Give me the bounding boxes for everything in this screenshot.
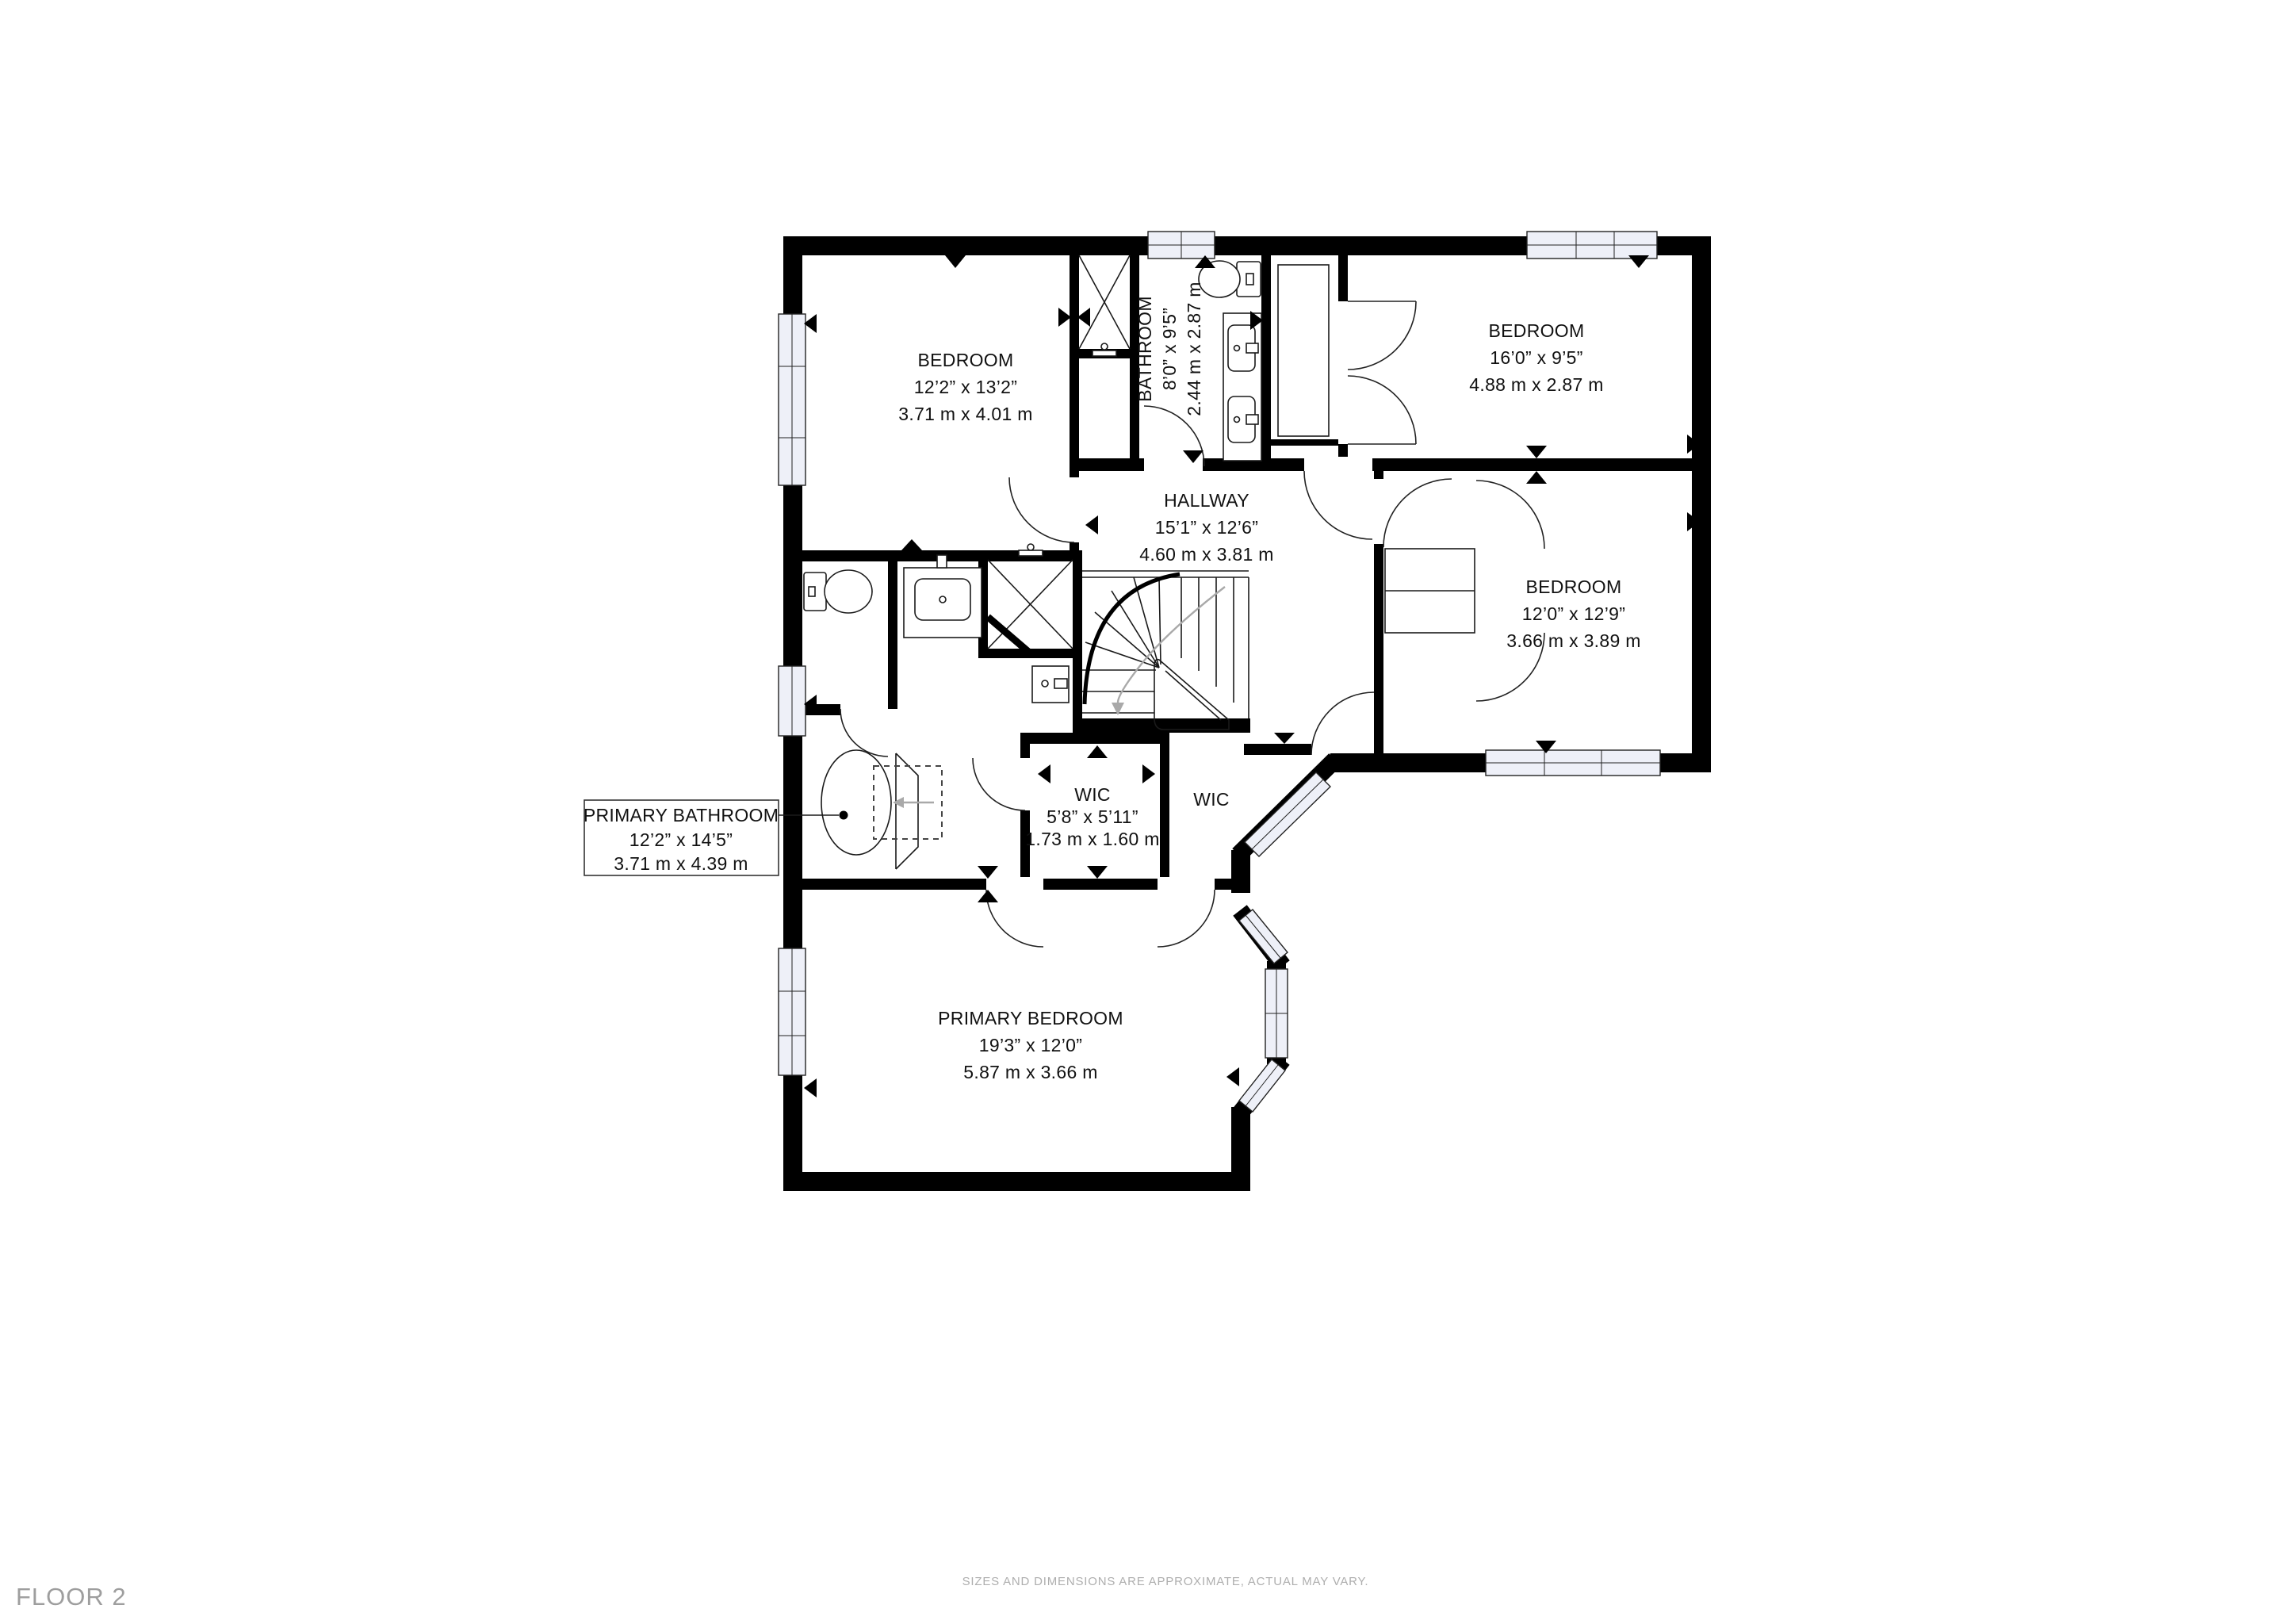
- bathroom-dim-ft: 8’0” x 9’5”: [1159, 308, 1180, 390]
- primary-bathroom-callout-dot: [840, 811, 848, 820]
- window-left-bedroom1: [779, 314, 806, 485]
- bedroom2-dim-ft: 16’0” x 9’5”: [1490, 347, 1582, 368]
- closet-bedroom2: [1278, 265, 1329, 436]
- window-left-primary-bedroom: [779, 948, 806, 1075]
- window-bay-center: [1265, 969, 1288, 1058]
- room-label-wic2: WIC: [1193, 789, 1230, 810]
- shower-top-bathroom: [1079, 255, 1130, 356]
- hallway-dim-ft: 15’1” x 12’6”: [1155, 517, 1258, 538]
- room-label-bathroom: BATHROOM 8’0” x 9’5” 2.44 m x 2.87 m: [1135, 282, 1204, 416]
- room-label-primary-bathroom: PRIMARY BATHROOM 12’2” x 14’5” 3.71 m x …: [584, 800, 848, 875]
- window-bay-upper: [1239, 910, 1288, 963]
- hallway-name: HALLWAY: [1164, 490, 1249, 511]
- floorplan-page: BEDROOM 12’2” x 13’2” 3.71 m x 4.01 m BA…: [0, 0, 2296, 1624]
- door-closet-bedroom2-b: [1348, 376, 1416, 444]
- room-label-bedroom1: BEDROOM 12’2” x 13’2” 3.71 m x 4.01 m: [898, 350, 1032, 424]
- staircase: [1082, 571, 1249, 730]
- room-label-wic: WIC 5’8” x 5’11” 1.73 m x 1.60 m: [1025, 784, 1159, 849]
- window-diagonal-wic: [1245, 772, 1330, 856]
- primary-bedroom-name: PRIMARY BEDROOM: [938, 1008, 1123, 1028]
- bedroom1-name: BEDROOM: [918, 350, 1014, 370]
- door-bedroom3: [1383, 479, 1452, 547]
- door-bedroom1: [1009, 477, 1074, 542]
- door-wic: [973, 758, 1025, 810]
- window-bay-lower: [1239, 1059, 1285, 1112]
- bedroom2-name: BEDROOM: [1489, 320, 1585, 341]
- label-layer: BEDROOM 12’2” x 13’2” 3.71 m x 4.01 m BA…: [584, 282, 1641, 1082]
- door-primary-bedroom-a: [986, 890, 1043, 947]
- door-closet-bedroom2-a: [1348, 301, 1416, 370]
- window-bottom-bedroom3: [1486, 750, 1660, 776]
- vanity-primary-bathroom: [904, 555, 982, 638]
- bedroom3-name: BEDROOM: [1526, 576, 1622, 597]
- wic-dim-m: 1.73 m x 1.60 m: [1025, 829, 1159, 849]
- room-label-bedroom2: BEDROOM 16’0” x 9’5” 4.88 m x 2.87 m: [1469, 320, 1603, 395]
- toilet-primary-bathroom: [804, 570, 872, 613]
- primary-bedroom-dim-m: 5.87 m x 3.66 m: [963, 1062, 1097, 1082]
- door-primary-bedroom-b: [1158, 890, 1215, 947]
- bathroom-dim-m: 2.44 m x 2.87 m: [1184, 282, 1204, 416]
- bedroom1-dim-ft: 12’2” x 13’2”: [914, 377, 1017, 397]
- bedroom2-dim-m: 4.88 m x 2.87 m: [1469, 374, 1603, 395]
- room-label-bedroom3: BEDROOM 12’0” x 12’9” 3.66 m x 3.89 m: [1506, 576, 1640, 651]
- wic-dim-ft: 5’8” x 5’11”: [1047, 806, 1138, 827]
- primary-bedroom-dim-ft: 19’3” x 12’0”: [979, 1035, 1082, 1055]
- primary-bathroom-dim-m: 3.71 m x 4.39 m: [614, 853, 748, 874]
- double-vanity-top-bathroom: [1223, 313, 1261, 461]
- hallway-dim-m: 4.60 m x 3.81 m: [1139, 544, 1273, 565]
- sink-hall-nook: [1032, 666, 1069, 703]
- wic-name: WIC: [1074, 784, 1111, 805]
- primary-bathroom-name: PRIMARY BATHROOM: [584, 805, 779, 825]
- disclaimer-text: SIZES AND DIMENSIONS ARE APPROXIMATE, AC…: [962, 1575, 1369, 1588]
- bedroom3-dim-ft: 12’0” x 12’9”: [1522, 603, 1625, 624]
- door-toilet-room: [840, 709, 888, 756]
- bedroom1-dim-m: 3.71 m x 4.01 m: [898, 404, 1032, 424]
- room-label-hallway: HALLWAY 15’1” x 12’6” 4.60 m x 3.81 m: [1139, 490, 1273, 565]
- bedroom3-dim-m: 3.66 m x 3.89 m: [1506, 630, 1640, 651]
- closet-bedroom3: [1385, 549, 1475, 633]
- door-wic-corridor: [1311, 692, 1374, 755]
- bathroom-name: BATHROOM: [1135, 296, 1155, 402]
- door-closet-bedroom3-a: [1476, 481, 1544, 549]
- window-top-bedroom2: [1527, 232, 1657, 259]
- floor-plan-canvas: BEDROOM 12’2” x 13’2” 3.71 m x 4.01 m BA…: [0, 0, 2296, 1624]
- room-label-primary-bedroom: PRIMARY BEDROOM 19’3” x 12’0” 5.87 m x 3…: [938, 1008, 1123, 1082]
- primary-bathroom-dim-ft: 12’2” x 14’5”: [629, 829, 733, 850]
- tub-deck: [896, 753, 918, 869]
- bathtub: [821, 750, 891, 855]
- floor-title: FLOOR 2: [16, 1583, 127, 1611]
- door-bedroom2: [1304, 471, 1372, 539]
- window-top-bathroom: [1148, 232, 1215, 259]
- window-left-toilet-room: [779, 666, 806, 736]
